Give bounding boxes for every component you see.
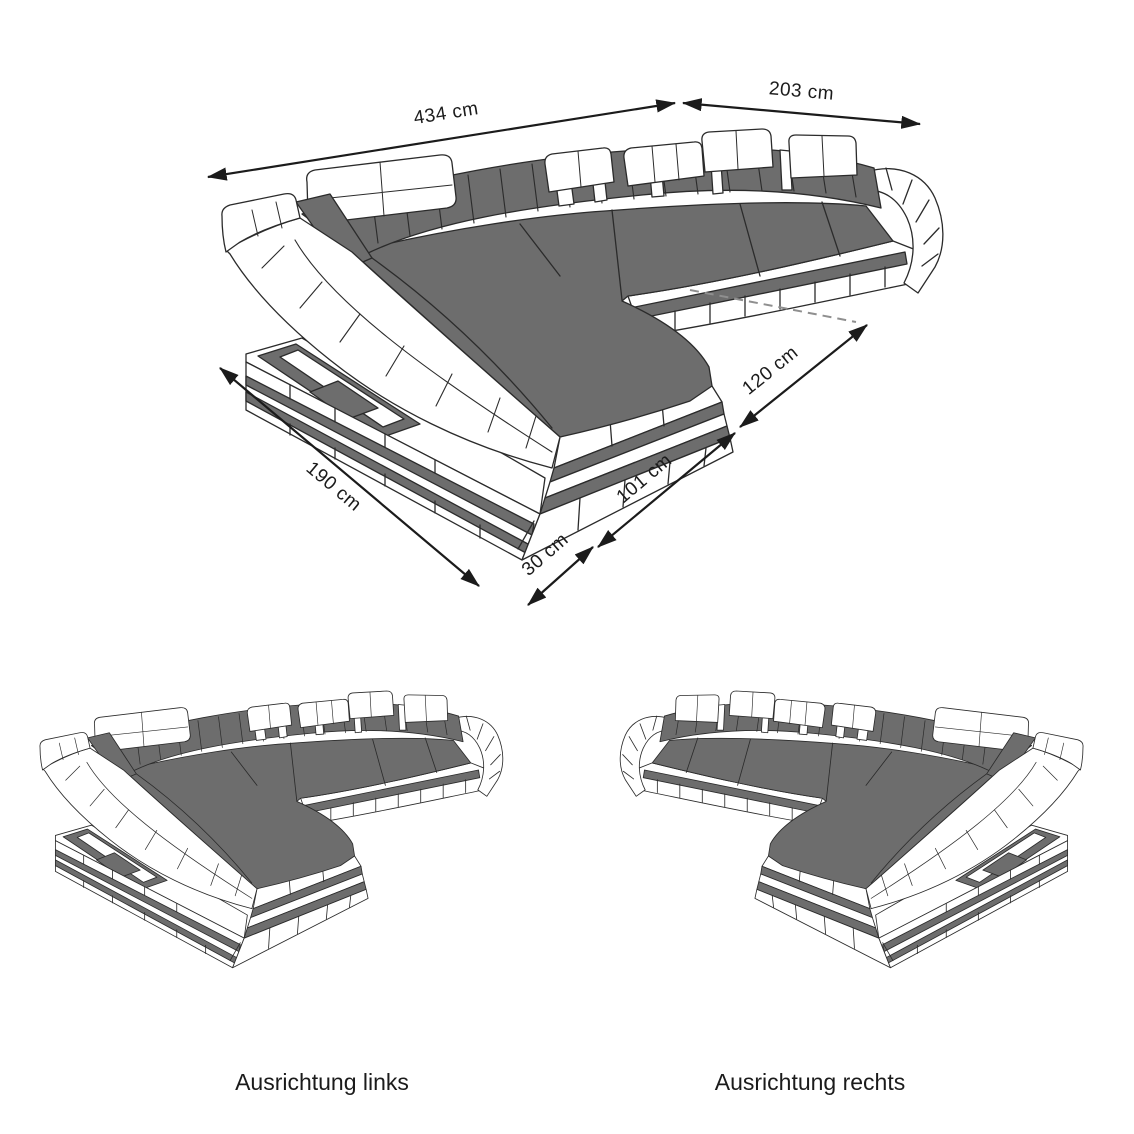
dimension-inner-notch: 120 cm [739,325,867,427]
diagram-canvas: 434 cm 203 cm 190 cm 30 cm 101 cm 120 cm… [0,0,1134,1134]
sofa-dimension-diagram: 434 cm 203 cm 190 cm 30 cm 101 cm 120 cm… [0,0,1134,1134]
dimension-label-back-width: 434 cm [412,98,480,129]
dimension-label-inner-notch: 120 cm [739,342,803,399]
caption-orientation-left: Ausrichtung links [235,1069,409,1095]
caption-orientation-right: Ausrichtung rechts [715,1069,905,1095]
dimension-label-right-width: 203 cm [768,78,835,105]
dimension-right-width: 203 cm [683,78,920,124]
sofa-variant-left [40,691,503,968]
sofa-variant-right [620,691,1083,968]
